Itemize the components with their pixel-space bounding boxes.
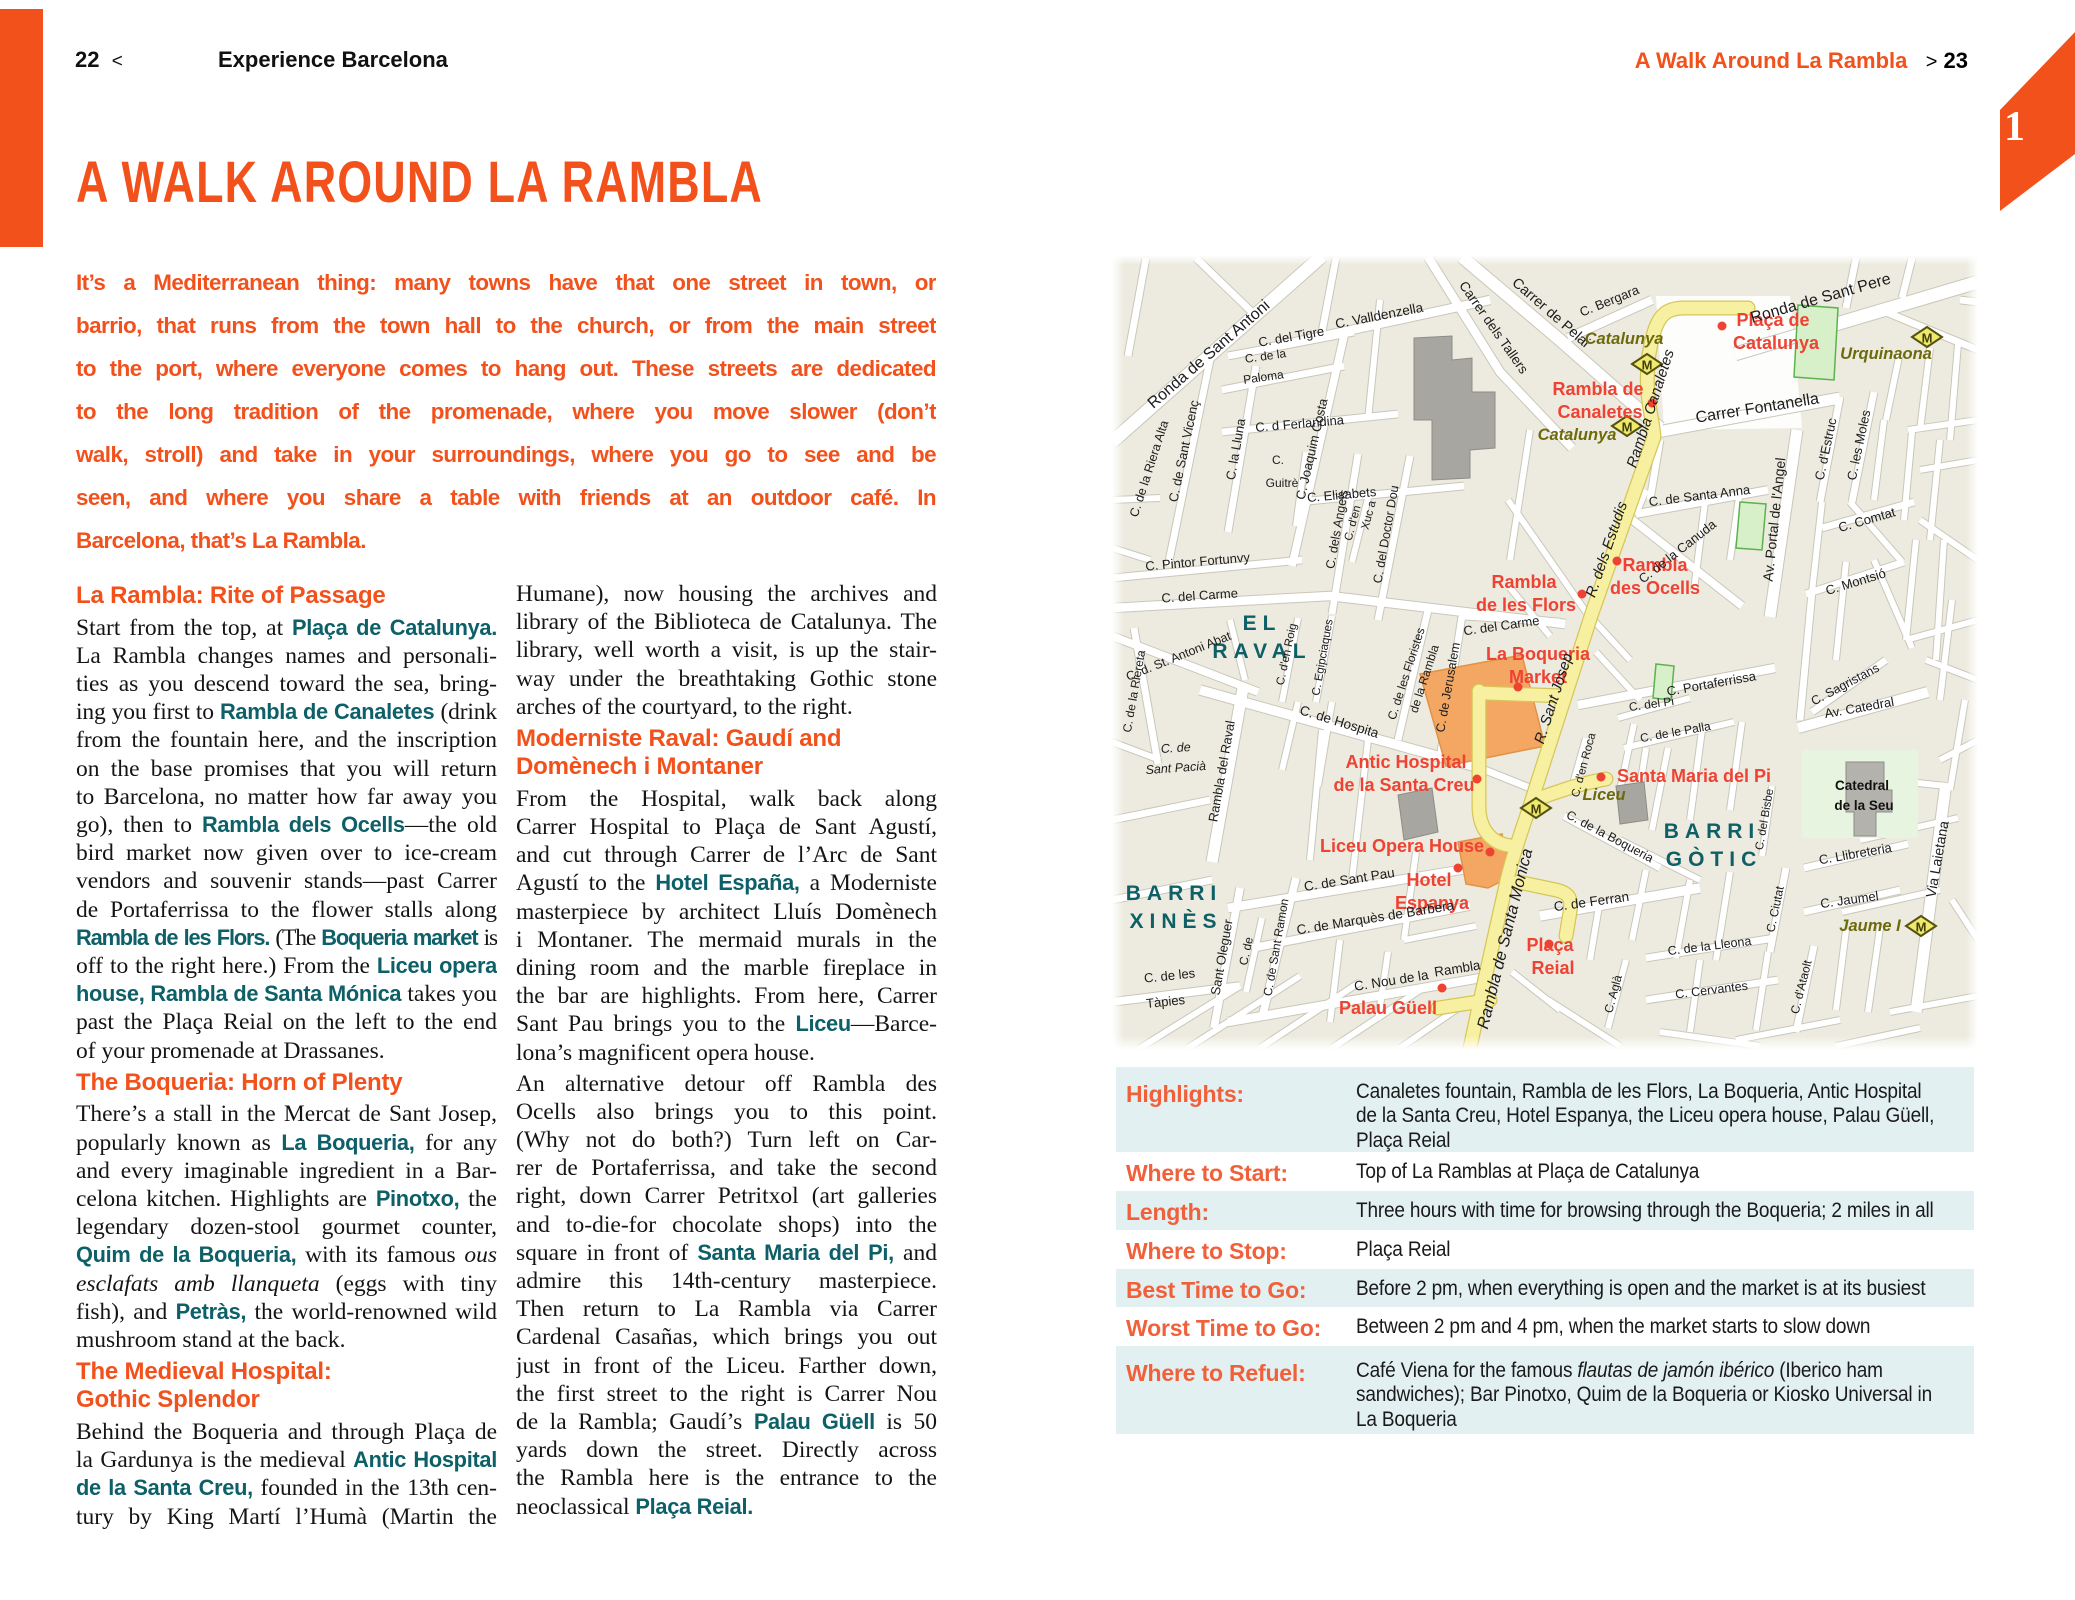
svg-text:Antic Hospital: Antic Hospital (1345, 752, 1466, 772)
svg-text:Guitrè: Guitrè (1266, 476, 1299, 490)
svg-text:des Ocells: des Ocells (1610, 578, 1700, 598)
svg-text:Rambla: Rambla (1491, 572, 1557, 592)
svg-text:Catalunya: Catalunya (1733, 333, 1820, 353)
svg-text:Catalunya: Catalunya (1538, 426, 1617, 444)
svg-text:M: M (1531, 802, 1542, 817)
svg-text:Liceu: Liceu (1582, 786, 1625, 804)
svg-text:1: 1 (2004, 104, 2025, 150)
svg-text:Jaume I: Jaume I (1839, 917, 1901, 935)
svg-text:M: M (1642, 358, 1653, 373)
svg-text:M: M (1922, 331, 1933, 346)
svg-text:Rambla de: Rambla de (1552, 379, 1643, 399)
svg-text:EL: EL (1243, 612, 1282, 635)
svg-text:Hotel: Hotel (1407, 870, 1452, 890)
svg-text:de la Seu: de la Seu (1834, 798, 1893, 813)
svg-text:GÒTIC: GÒTIC (1666, 847, 1763, 871)
svg-text:Canaletes: Canaletes (1557, 402, 1642, 422)
svg-text:de la Santa Creu: de la Santa Creu (1333, 775, 1474, 795)
svg-text:Catedral: Catedral (1835, 778, 1889, 793)
svg-text:La Boqueria: La Boqueria (1486, 644, 1591, 664)
svg-text:M: M (1916, 920, 1927, 935)
svg-text:Reial: Reial (1531, 958, 1574, 978)
svg-text:XINÈS: XINÈS (1129, 910, 1222, 933)
svg-text:BARRI: BARRI (1126, 882, 1223, 905)
svg-text:Liceu Opera House: Liceu Opera House (1320, 836, 1484, 856)
svg-text:Santa Maria del Pi: Santa Maria del Pi (1617, 766, 1771, 786)
svg-text:Catalunya: Catalunya (1585, 330, 1664, 348)
svg-text:Plaça: Plaça (1526, 935, 1574, 955)
svg-text:C.: C. (1272, 453, 1284, 467)
svg-text:de les Flors: de les Flors (1476, 595, 1576, 615)
svg-text:Palau Güell: Palau Güell (1339, 998, 1437, 1018)
svg-text:BARRI: BARRI (1664, 820, 1761, 843)
svg-text:Urquinaona: Urquinaona (1840, 345, 1932, 363)
svg-text:C. de: C. de (1160, 740, 1191, 756)
